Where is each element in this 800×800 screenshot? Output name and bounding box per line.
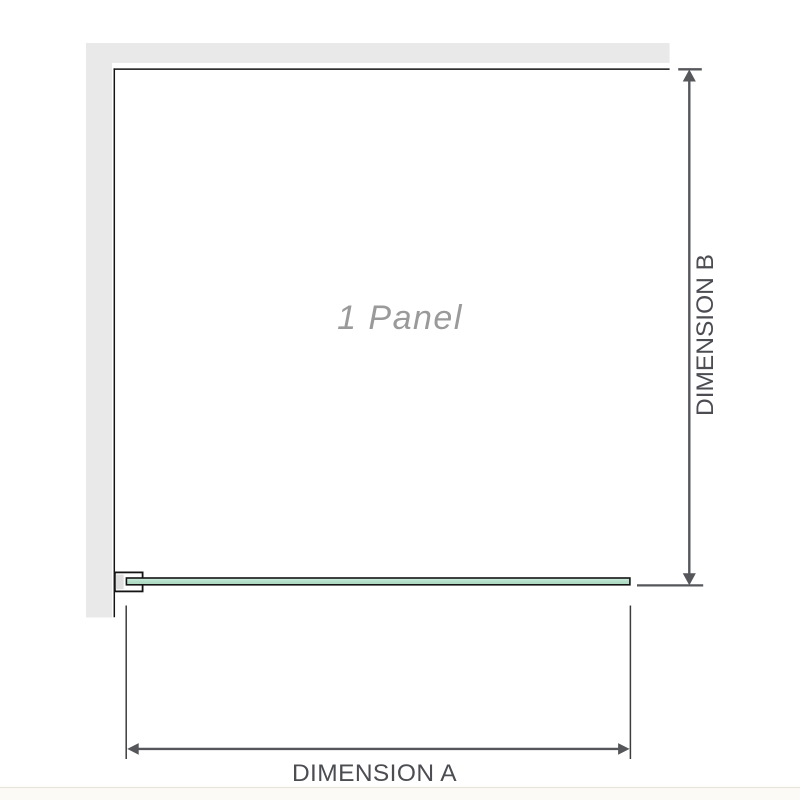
svg-text:1 Panel: 1 Panel <box>337 299 463 337</box>
svg-text:DIMENSION B: DIMENSION B <box>692 254 719 416</box>
svg-text:DIMENSION A: DIMENSION A <box>292 760 457 787</box>
